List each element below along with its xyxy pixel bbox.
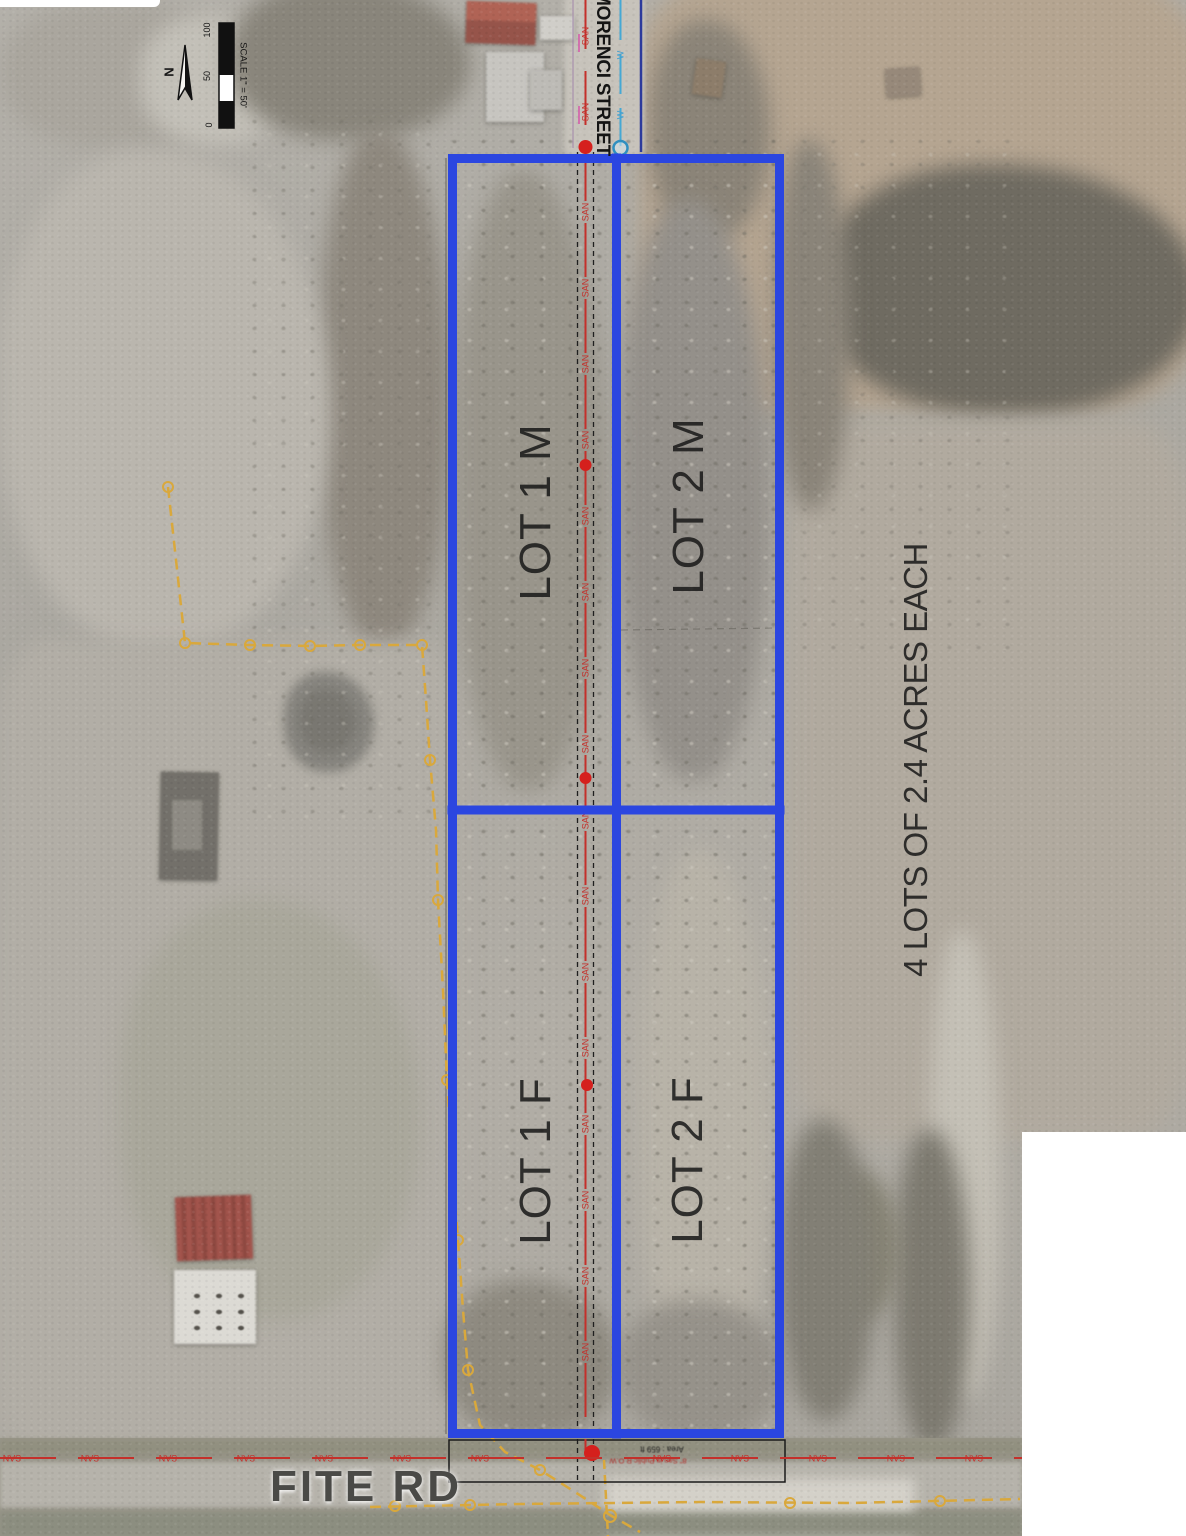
scale-tick-0: 0 bbox=[204, 122, 214, 127]
gas-line-markers bbox=[163, 482, 945, 1522]
san-label: SAN bbox=[581, 1039, 591, 1058]
san-label: SAN bbox=[581, 963, 591, 982]
gas-line bbox=[163, 482, 1020, 1536]
service-ticks bbox=[573, 0, 579, 148]
san-label: SAN bbox=[581, 887, 591, 906]
fite-rd-label: FITE RD bbox=[270, 1462, 462, 1512]
san-label: SAN bbox=[471, 1453, 490, 1463]
water-line: W W bbox=[614, 0, 628, 155]
morenci-street-label: MORENCI STREET bbox=[591, 0, 613, 156]
san-label: SAN bbox=[237, 1453, 256, 1463]
san-label: SAN bbox=[731, 1453, 750, 1463]
san-label: SAN bbox=[581, 103, 591, 122]
row-dedication-note: 8" San in Public R.O.W bbox=[608, 1457, 686, 1466]
survey-linework: W W SAN SAN SAN SAN SAN SAN SAN SAN SAN … bbox=[0, 0, 1186, 1536]
san-label: SAN bbox=[887, 1453, 906, 1463]
san-label: SAN bbox=[581, 659, 591, 678]
scale-tick-100: 100 bbox=[202, 22, 212, 37]
san-label: SAN bbox=[581, 27, 591, 46]
san-label: SAN bbox=[581, 279, 591, 298]
north-arrow-icon: N bbox=[162, 45, 193, 100]
lot-2f-label: LOT 2 F bbox=[663, 1076, 713, 1244]
scale-bar: 100 50 0 SCALE 1" = 50' bbox=[202, 22, 249, 128]
water-valve-symbol bbox=[614, 141, 628, 155]
san-label: SAN bbox=[809, 1453, 828, 1463]
acreage-note-label: 4 LOTS OF 2.4 ACRES EACH bbox=[897, 543, 935, 977]
water-label: W bbox=[616, 110, 626, 119]
water-label: W bbox=[616, 50, 626, 59]
scale-tick-50: 50 bbox=[202, 71, 212, 81]
san-label: SAN bbox=[581, 735, 591, 754]
north-label: N bbox=[162, 67, 177, 76]
san-label: SAN bbox=[581, 355, 591, 374]
site-plan-aerial-map: W W SAN SAN SAN SAN SAN SAN SAN SAN SAN … bbox=[0, 0, 1186, 1536]
san-label: SAN bbox=[581, 431, 591, 450]
san-label: SAN bbox=[581, 1191, 591, 1210]
san-label: SAN bbox=[81, 1453, 100, 1463]
san-label: SAN bbox=[581, 583, 591, 602]
fite-sewer-line: SAN SAN SAN SAN SAN SAN SAN SAN SAN SAN … bbox=[0, 1453, 1022, 1463]
lot-1f-label: LOT 1 F bbox=[511, 1077, 561, 1245]
san-label: SAN bbox=[581, 1343, 591, 1362]
sewer-manholes bbox=[579, 140, 601, 1461]
lot-1m-label: LOT 1 M bbox=[511, 423, 561, 600]
san-label: SAN bbox=[581, 1115, 591, 1134]
san-label: SAN bbox=[581, 507, 591, 526]
row-area-note: Area : 659 ft bbox=[639, 1445, 683, 1454]
row-annotations: Area : 659 ft 8" San in Public R.O.W bbox=[608, 1445, 686, 1466]
scale-label: SCALE 1" = 50' bbox=[238, 42, 249, 108]
san-label: SAN bbox=[3, 1453, 22, 1463]
san-label: SAN bbox=[159, 1453, 178, 1463]
san-label: SAN bbox=[965, 1453, 984, 1463]
san-label: SAN bbox=[581, 203, 591, 222]
lot-boundary-lines bbox=[452, 158, 780, 1434]
san-label: SAN bbox=[581, 1267, 591, 1286]
sanitary-sewer-line: SAN SAN SAN SAN SAN SAN SAN SAN SAN SAN … bbox=[579, 0, 601, 1461]
lot-2m-label: LOT 2 M bbox=[664, 417, 714, 594]
